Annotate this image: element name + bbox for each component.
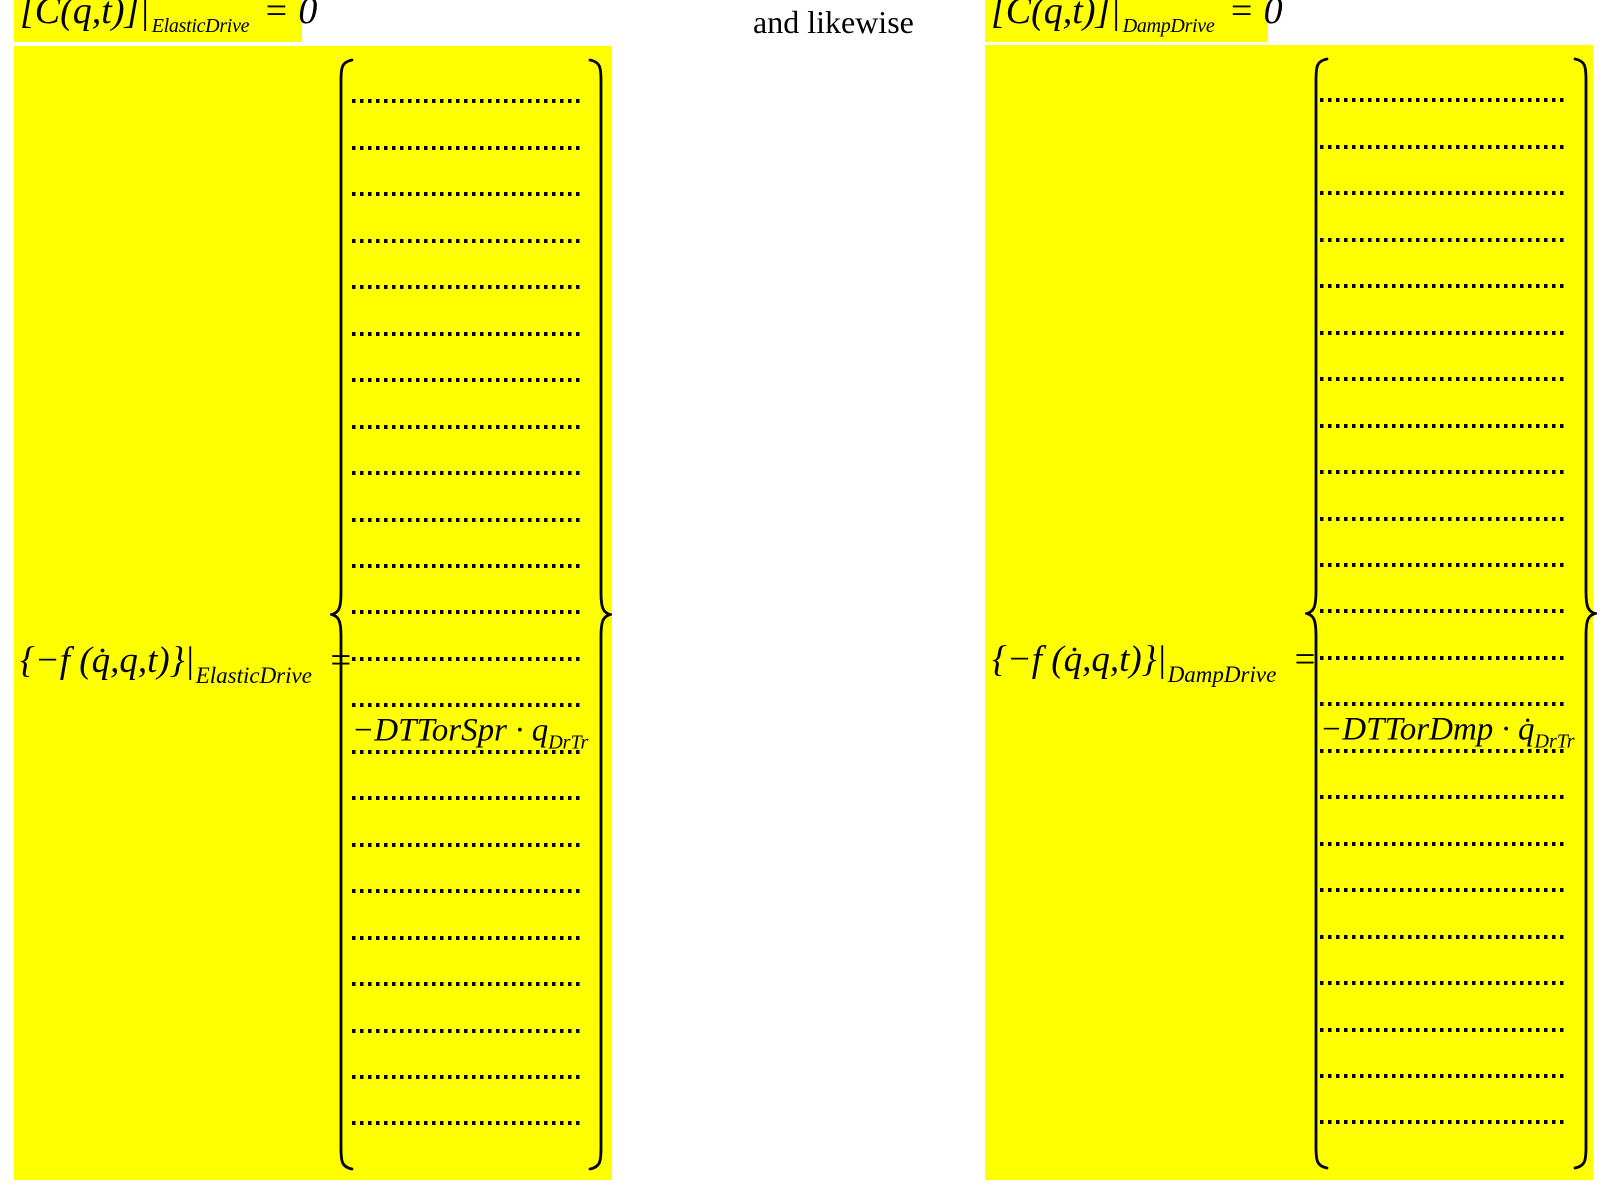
vector-rows: −DTTorDmp · q̇DrTr	[1318, 56, 1568, 1171]
vector-row	[1318, 613, 1568, 659]
vector-entry: −DTTorSpr · qDrTr	[352, 714, 588, 747]
vector-row	[1318, 242, 1568, 288]
vector-row	[1318, 288, 1568, 334]
vector-row	[1318, 1032, 1568, 1078]
vector-row	[1318, 381, 1568, 427]
vector-row	[350, 940, 588, 986]
equation-text: [C(q,t)]| ElasticDrive = 0	[20, 0, 317, 33]
vector-row	[1318, 799, 1568, 845]
equation-rhs: = 0	[263, 0, 317, 33]
vector-row	[350, 196, 588, 242]
label-lhs: {−f (q̇,q,t)}|	[992, 641, 1167, 678]
equation-lhs: [C(q,t)]|	[991, 0, 1121, 33]
equation-subscript: ElasticDrive	[152, 15, 249, 37]
vector-rows: −DTTorSpr · qDrTr	[350, 57, 588, 1172]
close-curly-brace-icon	[588, 57, 612, 1172]
vector-row	[1318, 474, 1568, 520]
vector-entry-subscript: DrTr	[1535, 730, 1575, 752]
vector-entry: −DTTorDmp · q̇DrTr	[1320, 713, 1575, 746]
vector-equation-label: {−f (q̇,q,t)}| ElasticDrive =	[20, 642, 353, 696]
vector-row	[1318, 846, 1568, 892]
label-subscript: DampDrive	[1168, 663, 1277, 686]
vector-row	[350, 568, 588, 614]
equation-subscript: DampDrive	[1123, 15, 1215, 37]
vector-row	[350, 1079, 588, 1125]
vector-row	[1318, 195, 1568, 241]
vector-row	[1318, 939, 1568, 985]
vector-row	[350, 1033, 588, 1079]
vector-row	[1318, 149, 1568, 195]
vector-row	[1318, 335, 1568, 381]
damp-drive-vector-block: {−f (q̇,q,t)}| DampDrive = −DTTorDmp · q…	[985, 45, 1593, 1180]
vector-row	[1318, 521, 1568, 567]
connector-text: and likewise	[753, 2, 968, 42]
vector-row	[1318, 428, 1568, 474]
vector-row	[350, 893, 588, 939]
vector-row	[350, 1125, 588, 1171]
constraint-equation-elastic: [C(q,t)]| ElasticDrive = 0	[14, 0, 302, 42]
vector-row	[1318, 753, 1568, 799]
equation-rhs: = 0	[1228, 0, 1282, 33]
vector-row	[1318, 567, 1568, 613]
vector-row	[1318, 102, 1568, 148]
vector-row	[350, 429, 588, 475]
vector-row	[350, 475, 588, 521]
constraint-equation-damp: [C(q,t)]| DampDrive = 0	[985, 0, 1268, 42]
vector-row	[1318, 1078, 1568, 1124]
vector-row	[350, 289, 588, 335]
vector-row	[1318, 1124, 1568, 1170]
vector-row	[1318, 892, 1568, 938]
label-subscript: ElasticDrive	[196, 664, 312, 687]
vector-entry-text: −DTTorDmp · q̇	[1320, 711, 1535, 747]
vector-row	[1318, 56, 1568, 102]
vector-row	[350, 754, 588, 800]
vector-row	[1318, 660, 1568, 706]
vector-entry-subscript: DrTr	[548, 731, 588, 753]
vector-row	[350, 150, 588, 196]
vector-row	[350, 986, 588, 1032]
document-page: [C(q,t)]| ElasticDrive = 0 and likewise …	[0, 0, 1602, 1188]
elastic-drive-vector-block: {−f (q̇,q,t)}| ElasticDrive = −DTTorSpr …	[14, 46, 612, 1180]
close-curly-brace-icon	[1573, 56, 1597, 1171]
vector-row	[350, 800, 588, 846]
vector-row	[350, 57, 588, 103]
vector-row: −DTTorDmp · q̇DrTr	[1318, 706, 1568, 752]
vector-entry-text: −DTTorSpr · q	[352, 712, 548, 748]
equation-text: [C(q,t)]| DampDrive = 0	[991, 0, 1283, 33]
vector-row: −DTTorSpr · qDrTr	[350, 707, 588, 753]
vector-row	[350, 522, 588, 568]
vector-row	[1318, 985, 1568, 1031]
vector-row	[350, 103, 588, 149]
vector-row	[350, 336, 588, 382]
vector-row	[350, 382, 588, 428]
vector-row	[350, 614, 588, 660]
equation-lhs: [C(q,t)]|	[20, 0, 150, 33]
vector-row	[350, 847, 588, 893]
vector-row	[350, 661, 588, 707]
label-lhs: {−f (q̇,q,t)}|	[20, 642, 195, 679]
vector-row	[350, 243, 588, 289]
vector-equation-label: {−f (q̇,q,t)}| DampDrive =	[992, 641, 1317, 695]
